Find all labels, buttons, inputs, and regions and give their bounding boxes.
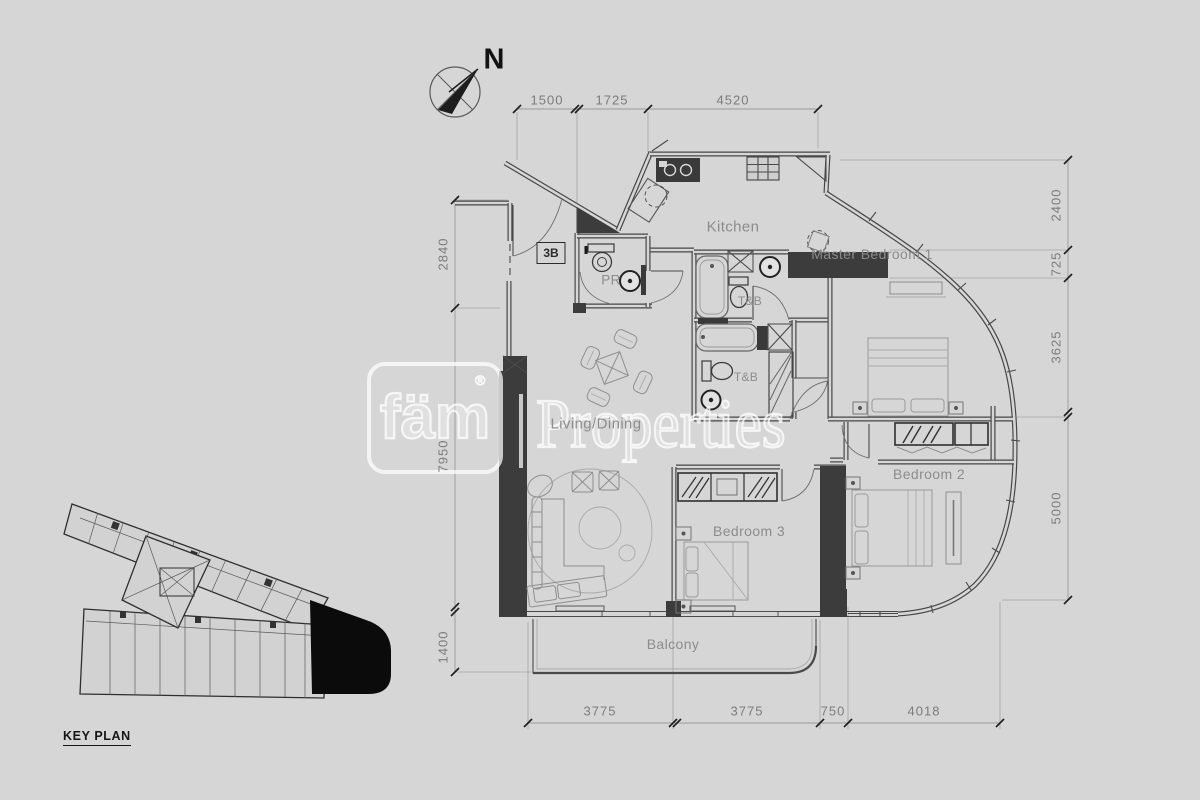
master-bedroom-furniture (853, 282, 963, 416)
north-arrow-icon (430, 67, 480, 117)
dim-bottom-4: 4018 (908, 704, 941, 719)
fridge-icon (628, 178, 669, 222)
floorplan-page: fäm ® Properties N 3B Kitchen PR T&B T&B… (0, 0, 1200, 800)
armchair-icon (524, 471, 557, 501)
dim-bottom-1: 3775 (584, 704, 617, 719)
wardrobe-icon (895, 423, 988, 453)
room-label-tb1: T&B (738, 294, 762, 308)
toilet-icon (702, 361, 733, 381)
dim-right-1: 2400 (1049, 189, 1064, 222)
sink-icon (760, 257, 780, 277)
kitchen-fixtures (628, 157, 829, 253)
north-label: N (484, 44, 505, 77)
room-label-master-bedroom: Master Bedroom 1 (811, 246, 933, 262)
bedroom2-furniture (846, 477, 961, 579)
hob-icon (747, 157, 779, 180)
bed-icon (852, 490, 932, 566)
dim-right-4: 5000 (1049, 492, 1064, 525)
dim-left-1: 2840 (436, 238, 451, 271)
sink-icon (620, 265, 646, 295)
toilet-icon (586, 244, 614, 272)
dresser-icon (890, 282, 942, 294)
room-label-tb2: T&B (734, 370, 758, 384)
watermark-registered: ® (475, 372, 485, 388)
dim-top-2: 1725 (596, 93, 629, 108)
room-label-balcony: Balcony (647, 636, 700, 652)
bathtub-icon (696, 256, 728, 324)
sofa-icon (527, 497, 607, 607)
rug-icon (528, 469, 652, 593)
living-furniture (524, 320, 666, 608)
dim-top-1: 1500 (531, 93, 564, 108)
dresser-icon (946, 492, 961, 564)
wardrobe-icon (678, 473, 777, 501)
room-label-kitchen: Kitchen (707, 219, 760, 236)
key-plan-map (64, 504, 391, 698)
stove-icon (656, 158, 700, 182)
dim-right-2: 725 (1049, 252, 1064, 277)
dim-left-2: 7950 (436, 440, 451, 473)
watermark-separator (519, 394, 523, 468)
dim-right-3: 3625 (1049, 331, 1064, 364)
highlighted-unit (310, 600, 391, 694)
room-label-pr: PR (601, 273, 621, 288)
bathtub-icon (696, 324, 758, 351)
room-label-bedroom2: Bedroom 2 (893, 466, 965, 482)
dim-left-3: 1400 (436, 631, 451, 664)
dim-top-3: 4520 (717, 93, 750, 108)
dim-bottom-3: 750 (821, 704, 846, 719)
corner-counter-icon (797, 157, 826, 181)
room-label-bedroom3: Bedroom 3 (713, 523, 785, 539)
stool-icon (572, 471, 619, 492)
bathroom1-fixtures (696, 251, 780, 324)
bed-icon (684, 542, 748, 600)
key-plan-label: KEY PLAN (63, 729, 131, 746)
bedroom3-furniture (676, 473, 777, 613)
dim-bottom-2: 3775 (731, 704, 764, 719)
unit-tag: 3B (537, 242, 566, 264)
bed-icon (868, 338, 948, 416)
room-label-living-dining: Living/Dining (550, 416, 641, 433)
